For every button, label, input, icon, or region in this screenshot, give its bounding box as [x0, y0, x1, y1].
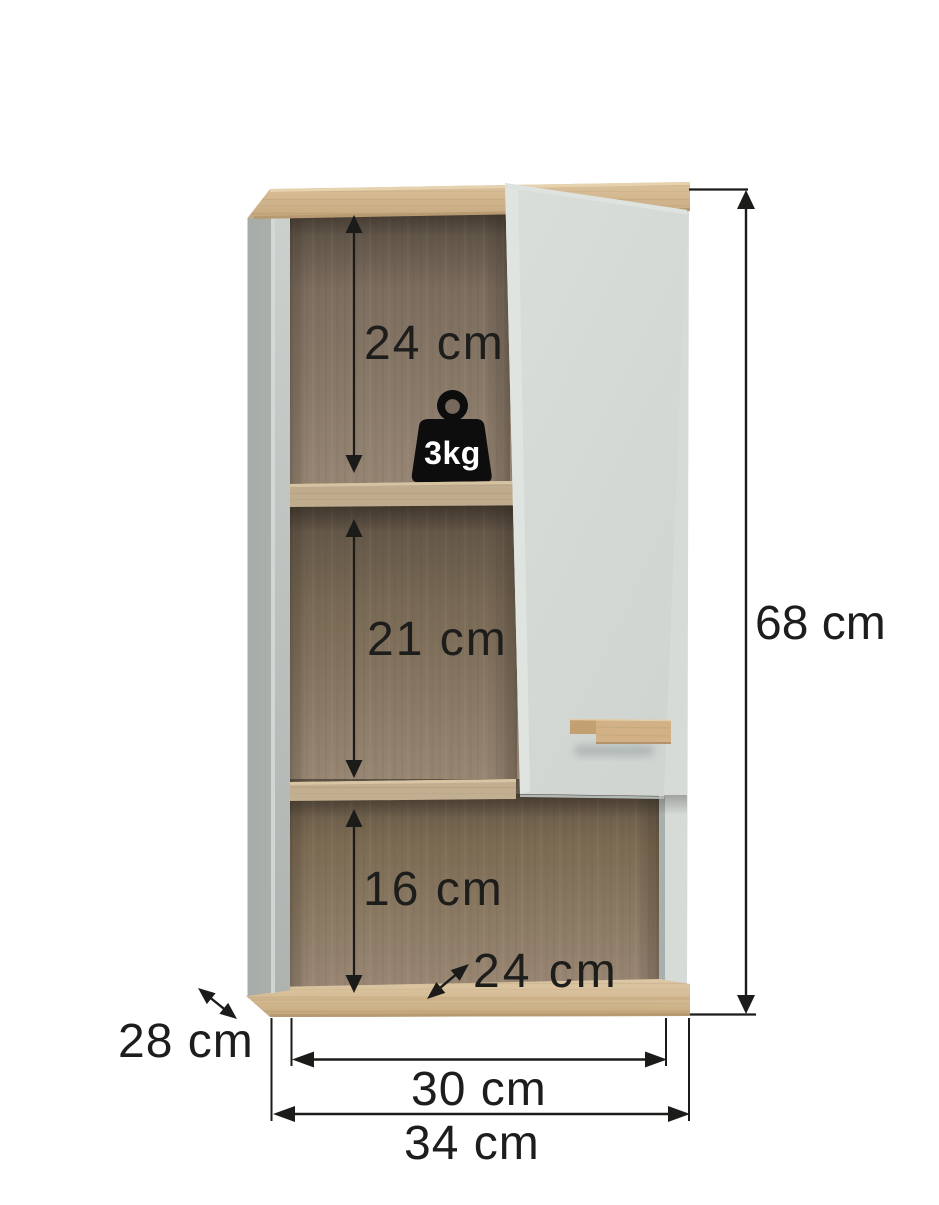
- svg-text:3kg: 3kg: [424, 435, 481, 471]
- svg-text:28 cm: 28 cm: [118, 1015, 254, 1068]
- svg-text:68 cm: 68 cm: [755, 597, 886, 650]
- svg-text:24 cm: 24 cm: [473, 945, 619, 998]
- svg-text:21 cm: 21 cm: [367, 613, 508, 666]
- svg-text:24 cm: 24 cm: [364, 317, 505, 370]
- svg-text:30 cm: 30 cm: [411, 1063, 547, 1116]
- svg-text:16 cm: 16 cm: [363, 863, 504, 916]
- svg-text:34 cm: 34 cm: [404, 1117, 540, 1170]
